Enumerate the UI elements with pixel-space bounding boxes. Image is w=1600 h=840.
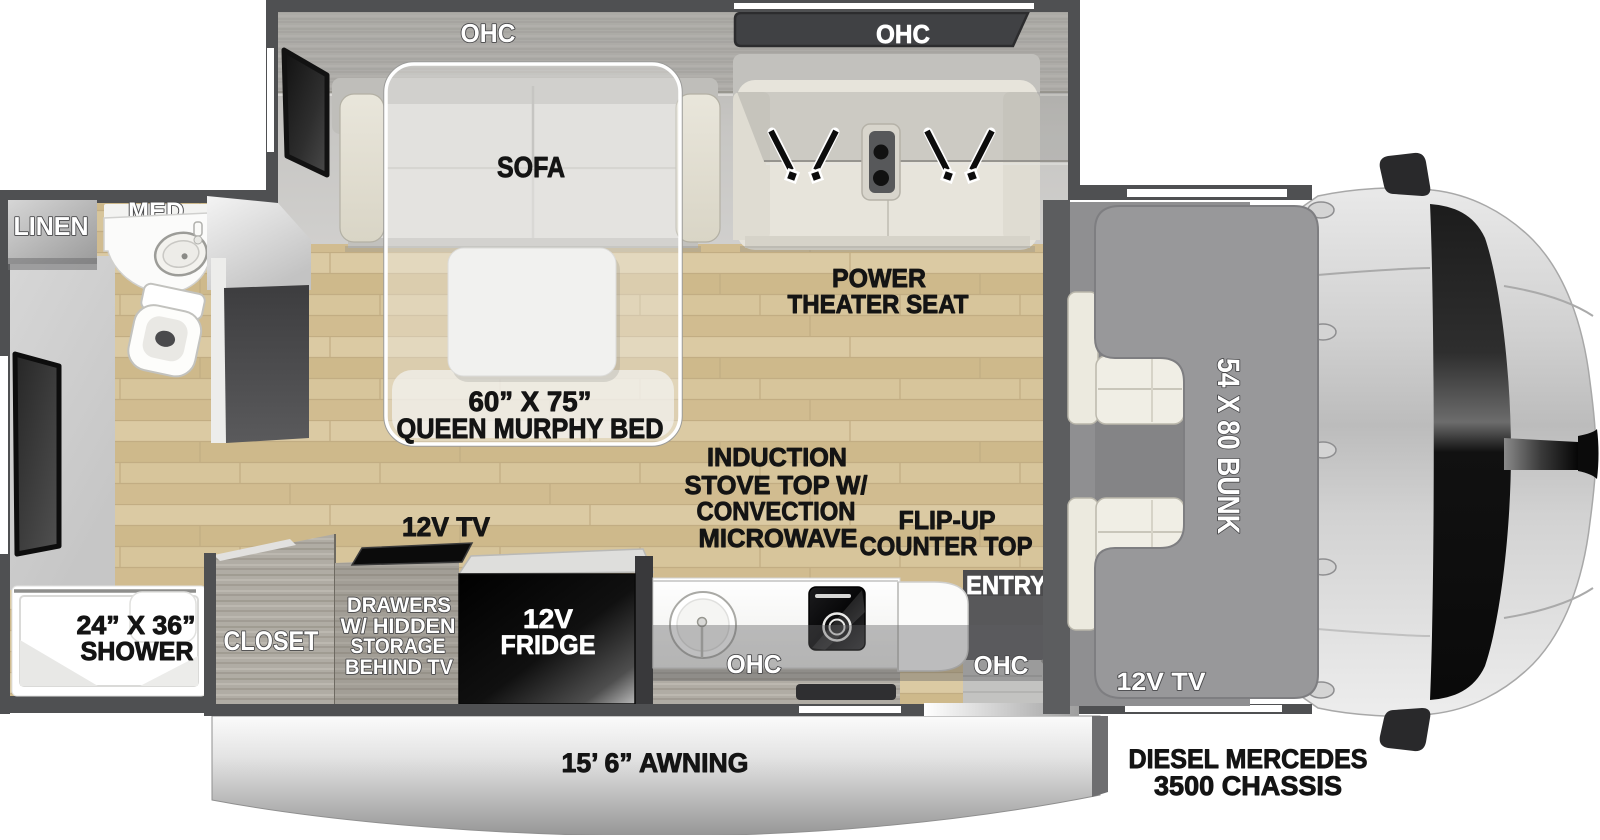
svg-text:12V TV: 12V TV bbox=[402, 512, 490, 542]
svg-text:INDUCTION: INDUCTION bbox=[707, 442, 847, 472]
svg-text:OHC: OHC bbox=[461, 18, 516, 48]
svg-text:MICROWAVE: MICROWAVE bbox=[699, 523, 858, 553]
svg-text:CLOSET: CLOSET bbox=[224, 626, 319, 656]
svg-text:SHOWER: SHOWER bbox=[81, 636, 194, 666]
svg-text:OHC: OHC bbox=[876, 19, 930, 49]
svg-text:12V TV: 12V TV bbox=[1117, 668, 1206, 696]
svg-text:STORAGE: STORAGE bbox=[351, 635, 446, 658]
svg-text:ENTRY: ENTRY bbox=[966, 570, 1046, 600]
svg-text:54 X 80 BUNK: 54 X 80 BUNK bbox=[1211, 358, 1246, 535]
svg-text:DIESEL MERCEDES: DIESEL MERCEDES bbox=[1129, 744, 1368, 774]
svg-text:OHC: OHC bbox=[974, 650, 1029, 680]
svg-text:CONVECTION: CONVECTION bbox=[697, 496, 856, 526]
svg-text:LINEN: LINEN bbox=[14, 211, 89, 241]
svg-text:SOFA: SOFA bbox=[497, 152, 565, 184]
svg-text:FRIDGE: FRIDGE bbox=[501, 630, 596, 660]
svg-text:DRAWERS: DRAWERS bbox=[347, 594, 451, 617]
svg-text:15’ 6” AWNING: 15’ 6” AWNING bbox=[562, 748, 749, 778]
svg-text:QUEEN MURPHY BED: QUEEN MURPHY BED bbox=[397, 413, 664, 444]
svg-text:3500 CHASSIS: 3500 CHASSIS bbox=[1154, 771, 1342, 801]
svg-text:OHC: OHC bbox=[727, 649, 782, 679]
svg-text:BEHIND TV: BEHIND TV bbox=[345, 656, 453, 679]
svg-text:COUNTER TOP: COUNTER TOP bbox=[860, 531, 1033, 561]
svg-text:THEATER SEAT: THEATER SEAT bbox=[788, 289, 969, 319]
